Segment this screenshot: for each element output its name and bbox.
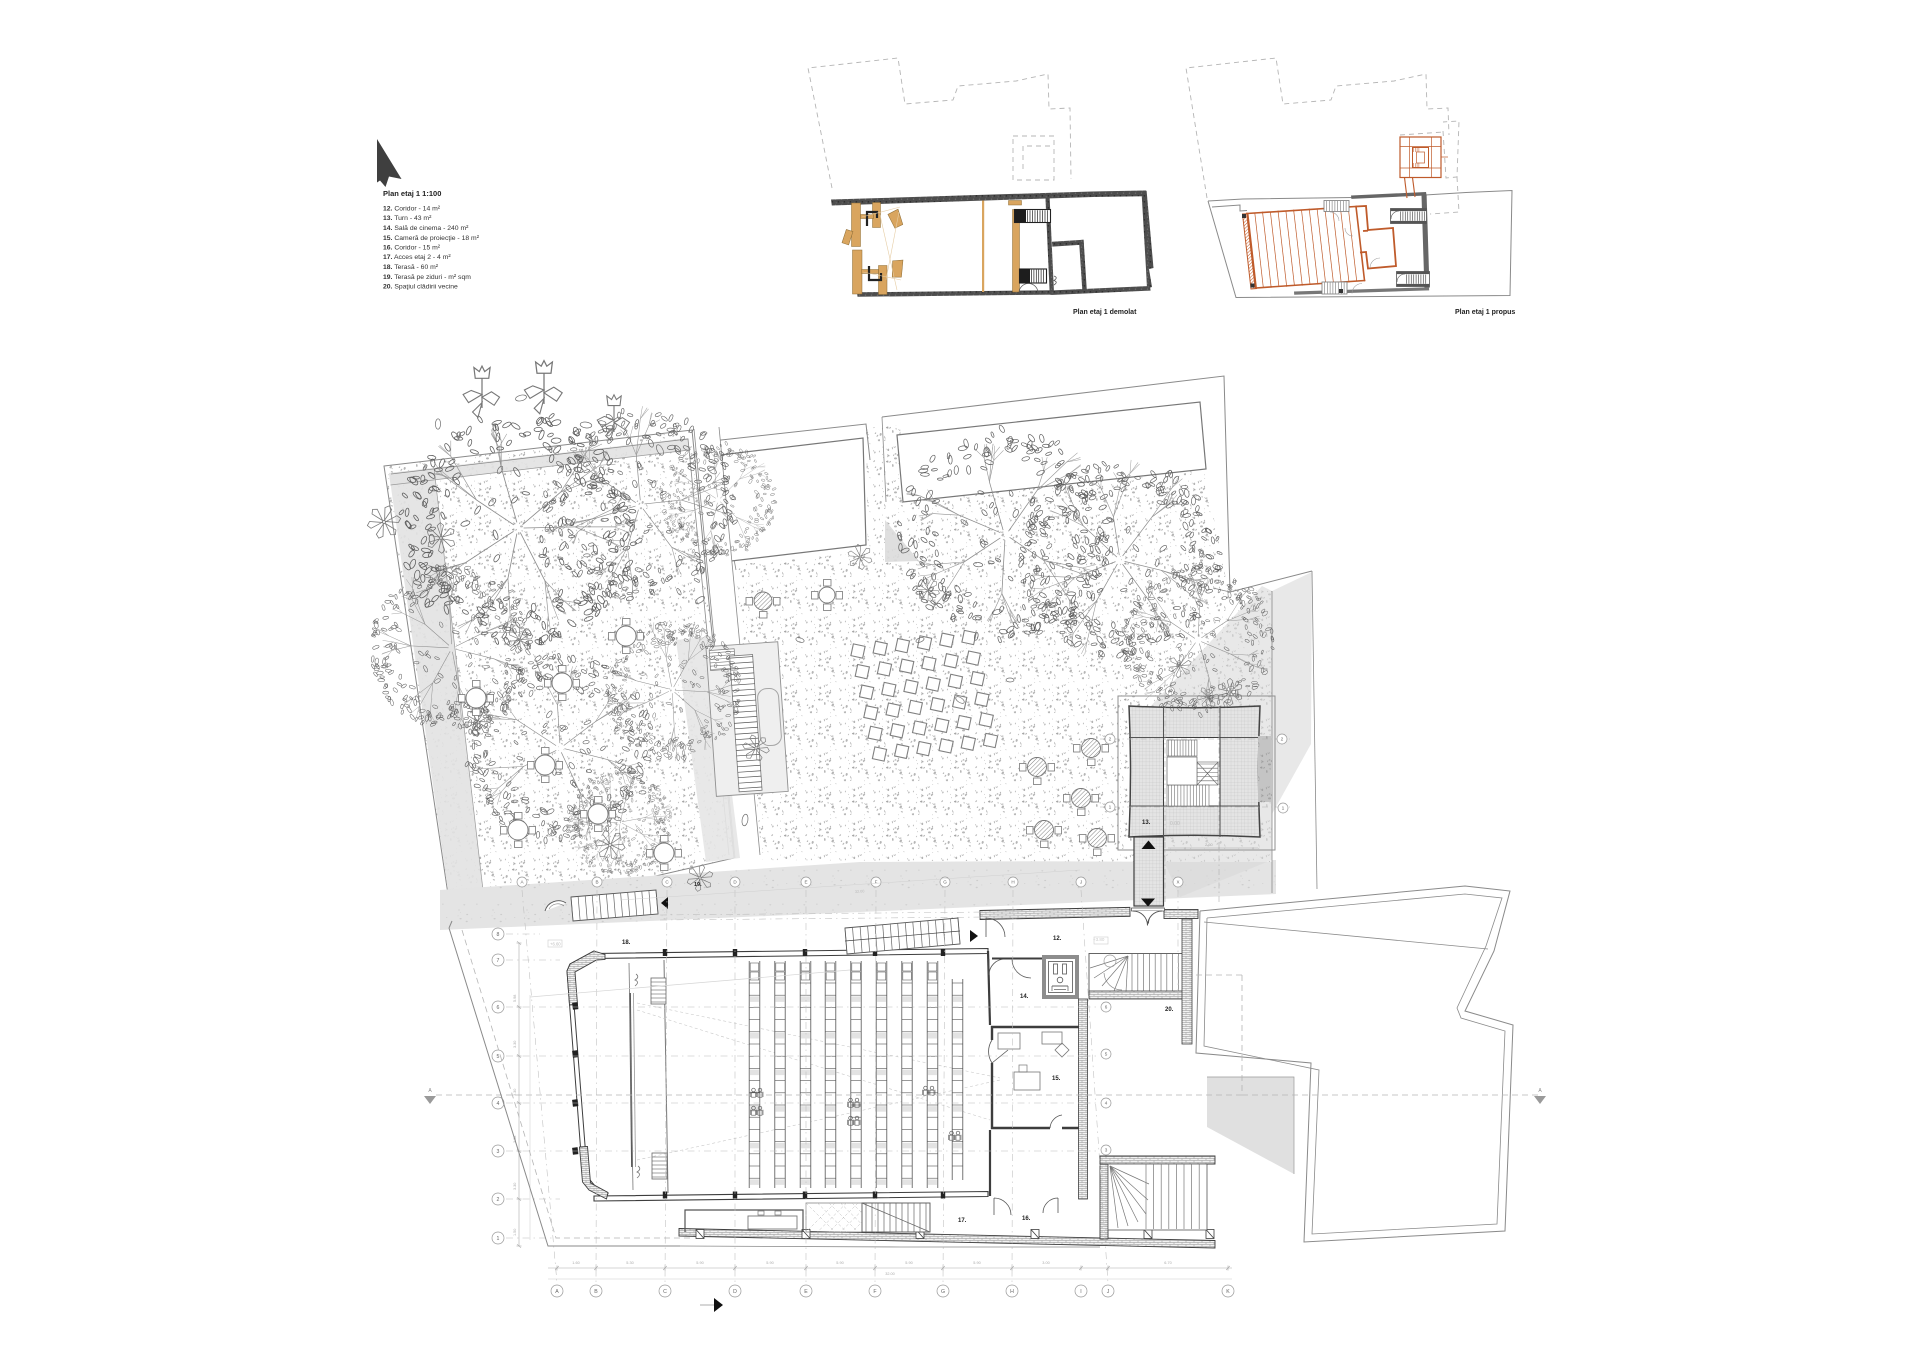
- svg-text:B: B: [595, 880, 598, 885]
- svg-text:3: 3: [1105, 1148, 1108, 1153]
- svg-text:13. Turn - 43 m²: 13. Turn - 43 m²: [383, 215, 432, 222]
- svg-text:1.50: 1.50: [513, 1229, 517, 1236]
- svg-text:19. Terasă pe ziduri - m² sqm: 19. Terasă pe ziduri - m² sqm: [383, 274, 471, 281]
- svg-text:A: A: [1169, 689, 1172, 694]
- svg-text:F: F: [875, 880, 878, 885]
- svg-text:12. Coridor - 14 m²: 12. Coridor - 14 m²: [383, 206, 441, 213]
- svg-text:A: A: [555, 1289, 559, 1295]
- svg-text:5.30: 5.30: [626, 1261, 633, 1265]
- svg-text:D: D: [733, 1289, 737, 1295]
- svg-text:F: F: [873, 1289, 876, 1295]
- svg-text:+3.80: +3.80: [1093, 937, 1105, 942]
- svg-text:5.90: 5.90: [905, 1261, 912, 1265]
- svg-text:5.98: 5.98: [513, 995, 517, 1002]
- svg-text:1: 1: [497, 1236, 500, 1242]
- svg-text:E: E: [804, 1289, 808, 1295]
- svg-text:J: J: [1080, 880, 1082, 885]
- svg-text:Plan etaj 1 1:100: Plan etaj 1 1:100: [383, 189, 441, 198]
- svg-text:5: 5: [1105, 1052, 1108, 1057]
- svg-text:H: H: [1011, 880, 1014, 885]
- svg-text:6: 6: [497, 1005, 500, 1011]
- svg-text:3.00: 3.00: [1042, 1261, 1049, 1265]
- svg-text:Plan etaj 1 propus: Plan etaj 1 propus: [1455, 309, 1515, 316]
- svg-text:3.30: 3.30: [513, 1089, 517, 1096]
- svg-text:16.: 16.: [1022, 1216, 1031, 1222]
- svg-text:20.: 20.: [1165, 1007, 1174, 1013]
- svg-text:18. Terasă - 60 m²: 18. Terasă - 60 m²: [383, 264, 439, 271]
- svg-text:2: 2: [497, 1197, 500, 1203]
- svg-text:15. Cameră de proiecţie - 18 m: 15. Cameră de proiecţie - 18 m²: [383, 235, 480, 242]
- svg-text:E: E: [804, 880, 807, 885]
- svg-text:B: B: [594, 1289, 598, 1295]
- svg-text:32.00: 32.00: [855, 889, 865, 894]
- svg-text:K: K: [1226, 1289, 1230, 1295]
- svg-text:1.60: 1.60: [572, 1261, 579, 1265]
- svg-text:6: 6: [1105, 1005, 1108, 1010]
- svg-text:17. Acces etaj 2 - 4 m²: 17. Acces etaj 2 - 4 m²: [383, 254, 451, 261]
- svg-text:5.90: 5.90: [766, 1261, 773, 1265]
- svg-text:5.90: 5.90: [973, 1261, 980, 1265]
- svg-text:14. Sală de cinema - 240 m²: 14. Sală de cinema - 240 m²: [383, 225, 469, 232]
- svg-text:2.60: 2.60: [1205, 842, 1214, 847]
- svg-text:2: 2: [1109, 737, 1112, 743]
- svg-text:12.: 12.: [1053, 936, 1062, 942]
- svg-text:5: 5: [497, 1054, 500, 1060]
- svg-text:H: H: [1010, 1289, 1014, 1295]
- svg-text:0.00: 0.00: [1170, 821, 1180, 827]
- svg-text:5.90: 5.90: [696, 1261, 703, 1265]
- svg-text:19.: 19.: [694, 882, 702, 888]
- svg-text:18.: 18.: [622, 940, 631, 946]
- svg-text:7: 7: [497, 958, 500, 964]
- svg-text:3.30: 3.30: [513, 1041, 517, 1048]
- svg-text:8: 8: [497, 932, 500, 938]
- svg-text:J: J: [1107, 1289, 1110, 1295]
- svg-text:4: 4: [497, 1101, 500, 1107]
- svg-text:15.: 15.: [1052, 1076, 1061, 1082]
- svg-text:32.00: 32.00: [885, 1272, 895, 1276]
- svg-text:20. Spaţiul clădirii vecine: 20. Spaţiul clădirii vecine: [383, 284, 458, 291]
- svg-text:C: C: [663, 1289, 667, 1295]
- svg-text:G: G: [941, 1289, 945, 1295]
- svg-text:Plan etaj 1 demolat: Plan etaj 1 demolat: [1073, 309, 1137, 316]
- svg-text:+6.60: +6.60: [550, 942, 561, 947]
- svg-text:3: 3: [497, 1149, 500, 1155]
- svg-text:6.70: 6.70: [1164, 1261, 1171, 1265]
- svg-text:14.: 14.: [1020, 994, 1029, 1000]
- svg-text:17.: 17.: [958, 1218, 967, 1224]
- svg-text:16. Coridor - 15 m²: 16. Coridor - 15 m²: [383, 245, 441, 252]
- svg-text:X: X: [1176, 880, 1179, 885]
- svg-text:1: 1: [1282, 806, 1285, 812]
- svg-text:I: I: [1080, 1289, 1081, 1295]
- svg-text:3.30: 3.30: [513, 1183, 517, 1190]
- svg-text:4: 4: [1105, 1101, 1108, 1106]
- svg-text:1: 1: [1109, 805, 1112, 811]
- svg-text:13.: 13.: [1142, 820, 1151, 826]
- svg-text:G: G: [943, 880, 947, 885]
- svg-text:5.90: 5.90: [836, 1261, 843, 1265]
- svg-text:2: 2: [1281, 737, 1284, 743]
